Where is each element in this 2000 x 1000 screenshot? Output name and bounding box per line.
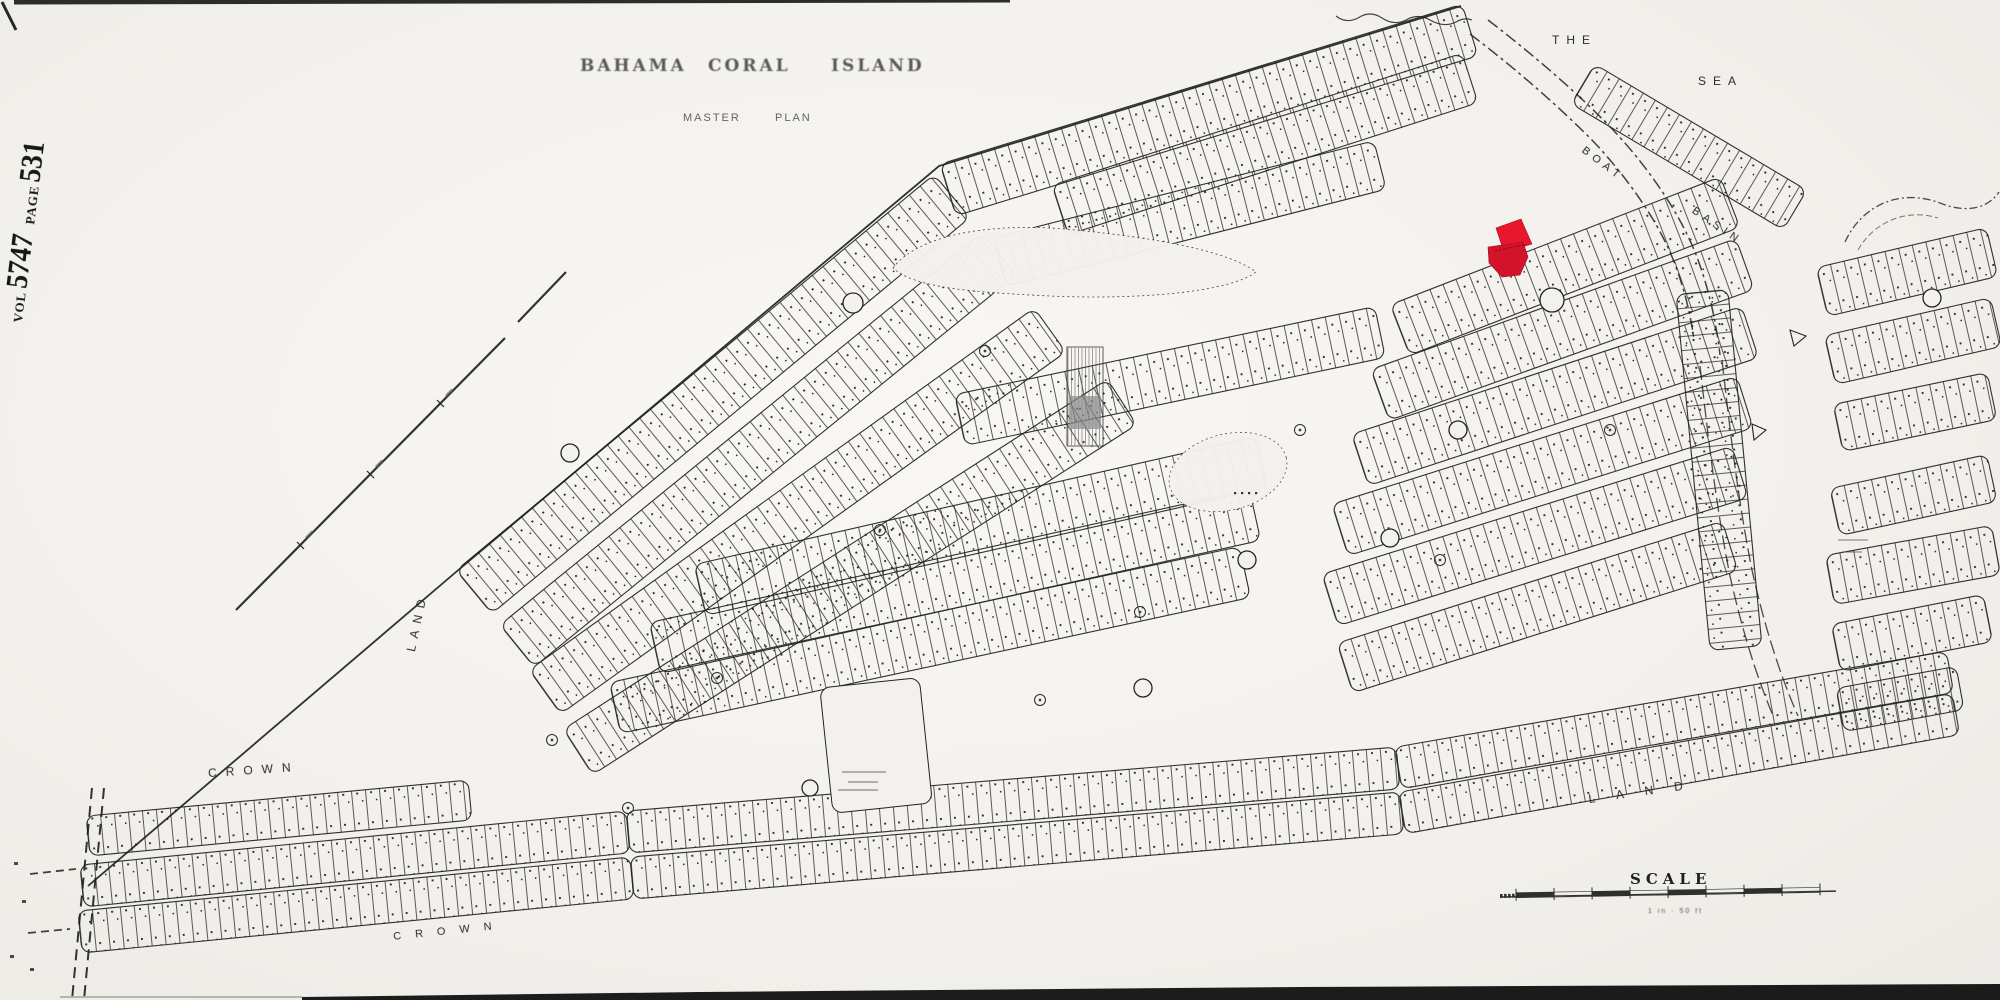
map-title-word-3: ISLAND [831,56,925,76]
map-subtitle-word-2: PLAN [775,112,812,124]
scale-title: SCALE [1630,870,1711,888]
map-title-word-1: BAHAMA [580,56,687,76]
scanned-plat-document: VOL 5747 PAGE 531 BAHAMA CORAL ISLAND MA… [0,0,2000,1000]
map-subtitle-word-1: MASTER [683,112,741,124]
page-label: PAGE [22,185,43,226]
plat-map-drawing [0,0,2000,1000]
vol-label: VOL [10,291,30,324]
volume-number: 5747 [0,232,41,291]
scale-ratio-text: 1 in · 50 ft [1648,908,1703,915]
map-title-word-2: CORAL [708,56,791,76]
sea-label-the: THE [1552,33,1597,47]
sea-label-sea: SEA [1698,74,1743,88]
page-number: 531 [11,139,52,184]
